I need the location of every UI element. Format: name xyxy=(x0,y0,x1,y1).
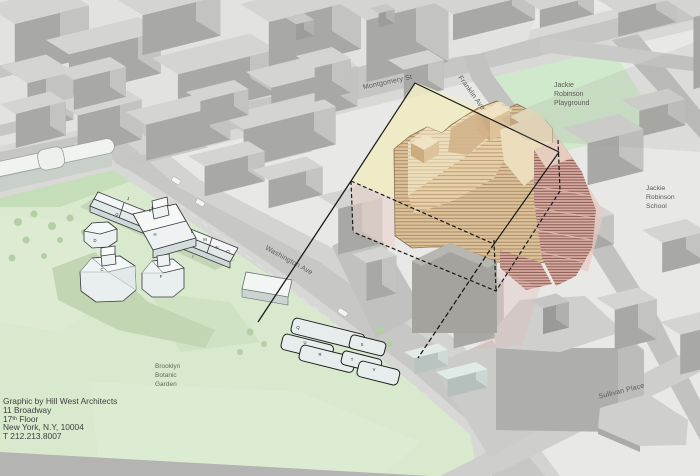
svg-text:V: V xyxy=(373,367,376,372)
svg-text:N: N xyxy=(215,245,218,250)
svg-text:Robinson: Robinson xyxy=(646,194,675,201)
svg-text:S: S xyxy=(361,342,364,347)
svg-text:Jackie: Jackie xyxy=(646,185,665,192)
svg-text:Jackie: Jackie xyxy=(554,82,574,89)
svg-text:H: H xyxy=(153,232,156,237)
svg-text:F: F xyxy=(160,274,163,279)
svg-text:I: I xyxy=(192,254,193,259)
svg-text:M: M xyxy=(203,237,207,242)
svg-text:Garden: Garden xyxy=(155,381,177,388)
svg-text:C: C xyxy=(100,267,103,272)
svg-text:Botanic: Botanic xyxy=(155,372,177,379)
svg-text:Robinson: Robinson xyxy=(554,91,584,98)
svg-text:R: R xyxy=(318,352,321,357)
svg-text:Brooklyn: Brooklyn xyxy=(155,363,181,370)
svg-text:T 212.213.8007: T 212.213.8007 xyxy=(3,431,62,441)
svg-text:D: D xyxy=(93,238,96,243)
svg-text:K: K xyxy=(149,208,152,213)
svg-text:U: U xyxy=(303,340,306,345)
svg-text:School: School xyxy=(646,203,667,210)
svg-text:J: J xyxy=(127,196,129,201)
svg-text:G: G xyxy=(115,212,118,217)
svg-text:T: T xyxy=(351,357,354,362)
svg-text:Playground: Playground xyxy=(554,100,590,107)
